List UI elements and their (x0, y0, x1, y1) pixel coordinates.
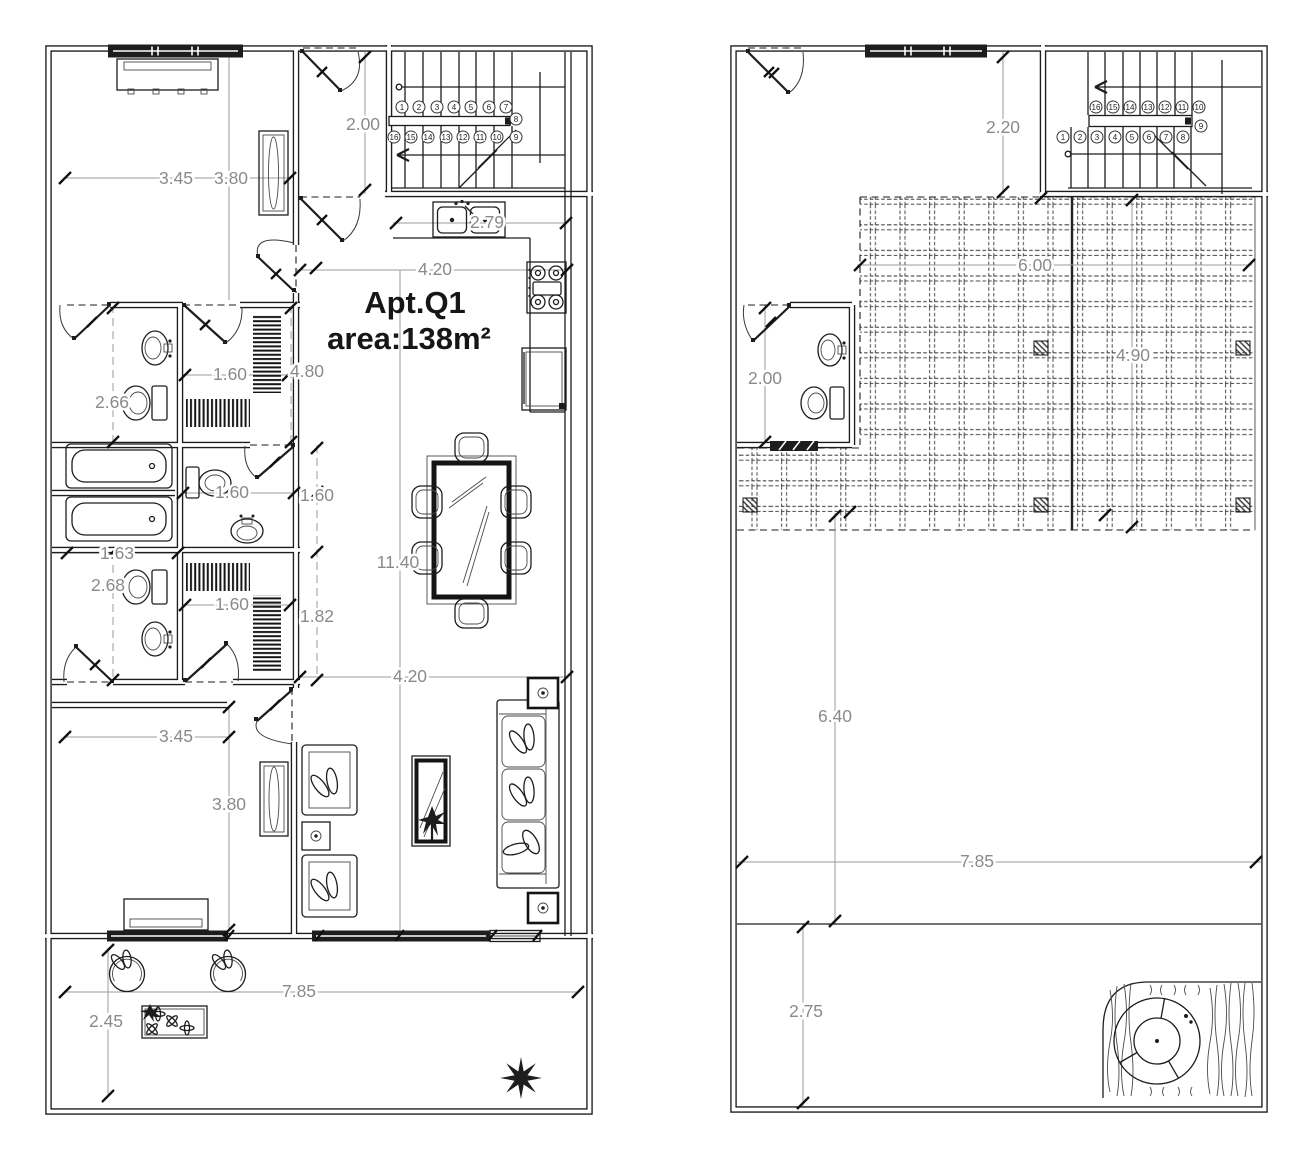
stair-number: 5 (1130, 133, 1135, 142)
dim-label: 6.00 (1018, 255, 1052, 275)
corner-table-top (528, 678, 558, 708)
planter-box (140, 1004, 207, 1038)
apartment-area: area:138m² (327, 321, 491, 356)
stair-number: 13 (442, 133, 451, 142)
stair-number: 10 (493, 133, 502, 142)
wc2 (186, 467, 263, 543)
dim-label: 1.60 (215, 594, 249, 614)
dim-label: 1.60 (215, 482, 249, 502)
armchair-2 (302, 855, 357, 917)
left-plan: 1 2 3 4 5 6 7 8 16 15 14 13 12 11 10 9 (45, 45, 779, 1112)
roof-joist-grid (737, 197, 1255, 530)
dim-label: 4.90 (1116, 345, 1150, 365)
dim-label: 6.40 (818, 706, 852, 726)
stair-number: 1 (1061, 133, 1066, 142)
dining-area (412, 433, 531, 628)
dim-label: 2.79 (470, 212, 504, 232)
stair-number: 6 (487, 103, 492, 112)
stair-number: 6 (1147, 133, 1152, 142)
dim-label: 7.85 (960, 851, 994, 871)
stair-number: 5 (469, 103, 474, 112)
stair-number: 7 (504, 103, 509, 112)
dim-label: 2.00 (346, 114, 380, 134)
dim-label: 4.80 (290, 361, 324, 381)
bathroom1 (122, 331, 172, 420)
closet2 (186, 563, 281, 672)
stair-number: 12 (1161, 103, 1170, 112)
stair-number: 4 (452, 103, 457, 112)
stair-number: 16 (390, 133, 399, 142)
bedroom1-window (108, 45, 243, 58)
dim-label: 2.45 (89, 1011, 123, 1031)
stair-number: 2 (417, 103, 422, 112)
corner-table-bottom (528, 893, 558, 923)
armchair-1 (302, 745, 357, 815)
dim-label: 11.40 (377, 552, 420, 572)
stair-number: 16 (1092, 103, 1101, 112)
right-plan: 16 15 14 13 12 11 10 9 1 2 3 4 5 6 7 8 (734, 45, 1269, 1110)
dim-label: 1.60 (213, 364, 247, 384)
right-doors (743, 48, 803, 342)
dim-label: 1.63 (100, 543, 134, 563)
dim-label: 3.80 (212, 794, 246, 814)
hot-tub (1103, 982, 1261, 1098)
dim-label: 7.85 (282, 981, 316, 1001)
fridge (522, 348, 566, 410)
dim-label: 4.20 (418, 259, 452, 279)
bedroom2-furniture (124, 762, 288, 930)
stair-number: 15 (407, 133, 416, 142)
stair-number: 1 (400, 103, 405, 112)
dim-label: 1.60 (300, 485, 334, 505)
stair-number: 12 (459, 133, 468, 142)
bath-window (770, 441, 818, 451)
dim-label: 3.45 (159, 168, 193, 188)
plant (500, 1057, 542, 1099)
dim-label: 2.20 (986, 117, 1020, 137)
balcony-chair-1 (109, 950, 144, 992)
stair-number: 14 (1126, 103, 1135, 112)
stair-number: 8 (514, 115, 519, 124)
right-staircase: 16 15 14 13 12 11 10 9 1 2 3 4 5 6 7 8 (1057, 52, 1261, 194)
stair-number: 9 (1199, 122, 1204, 131)
dim-label: 1.82 (300, 606, 334, 626)
stair-number: 11 (476, 133, 485, 142)
stair-number: 2 (1078, 133, 1083, 142)
bathroom2 (122, 570, 172, 656)
stair-number: 11 (1178, 103, 1187, 112)
floor-plan-sheet: 1 2 3 4 5 6 7 8 16 15 14 13 12 11 10 9 (0, 0, 1311, 1176)
wall-art (412, 756, 450, 846)
dim-label: 2.66 (95, 392, 129, 412)
stair-number: 3 (435, 103, 440, 112)
stair-number: 8 (1181, 133, 1186, 142)
stair-number: 10 (1195, 103, 1204, 112)
sofa (497, 700, 559, 888)
stair-number: 15 (1109, 103, 1118, 112)
stair-number: 7 (1164, 133, 1169, 142)
balcony-chair-2 (210, 950, 245, 992)
right-bathroom (801, 334, 846, 419)
dim-label: 3.45 (159, 726, 193, 746)
dim-label: 3.80 (214, 168, 248, 188)
stair-number: 13 (1144, 103, 1153, 112)
side-table (302, 822, 330, 850)
apartment-name: Apt.Q1 (364, 285, 466, 320)
stair-number: 4 (1113, 133, 1118, 142)
stair-number: 9 (514, 133, 519, 142)
dim-label: 2.75 (789, 1001, 823, 1021)
stair-number: 3 (1095, 133, 1100, 142)
dim-label: 2.00 (748, 368, 782, 388)
balcony (109, 950, 542, 1099)
bedroom1-furniture (117, 59, 288, 215)
dim-label: 2.68 (91, 575, 125, 595)
living-room (302, 678, 559, 923)
dim-label: 4.20 (393, 666, 427, 686)
stair-number: 14 (424, 133, 433, 142)
floor-plans-drawing: 1 2 3 4 5 6 7 8 16 15 14 13 12 11 10 9 (0, 0, 1311, 1176)
left-staircase: 1 2 3 4 5 6 7 8 16 15 14 13 12 11 10 9 (388, 52, 565, 188)
